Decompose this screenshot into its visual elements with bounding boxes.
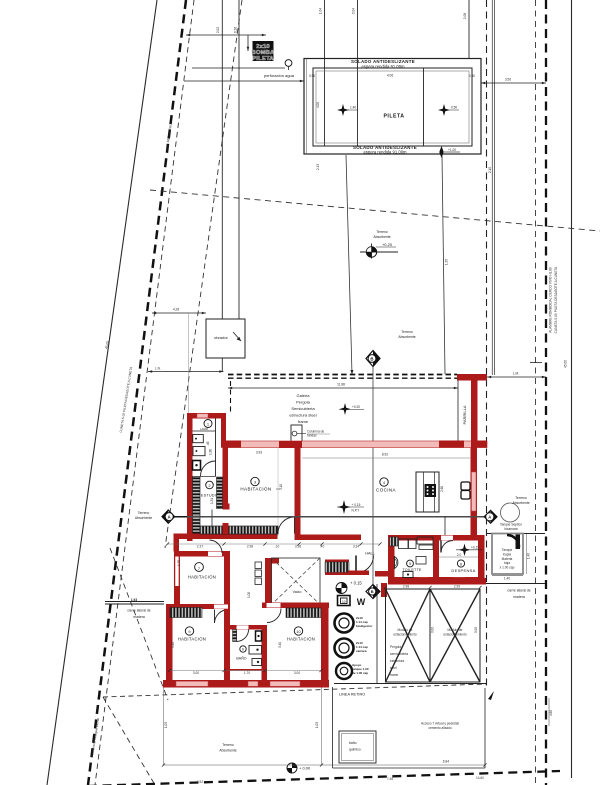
svg-text:1.31: 1.31 [210,498,214,504]
svg-text:Galeria: Galeria [297,393,311,398]
svg-text:espera rendida 91.00m: espera rendida 91.00m [361,64,405,69]
svg-text:1.04: 1.04 [319,8,323,14]
svg-text:frame: frame [390,673,398,677]
svg-text:1.70: 1.70 [177,560,181,566]
svg-text:Terreno: Terreno [138,511,150,515]
svg-text:1.40: 1.40 [350,106,356,110]
svg-text:perforacion agua: perforacion agua [264,73,295,78]
svg-text:.46: .46 [206,441,210,446]
svg-text:2.37: 2.37 [197,545,203,549]
svg-text:Terreno: Terreno [515,496,527,500]
svg-text:Terreno: Terreno [222,743,234,747]
svg-text:baja: baja [504,561,510,565]
svg-text:3.04: 3.04 [352,8,356,14]
svg-text:2.10: 2.10 [488,167,492,173]
svg-text:HABITACION: HABITACION [178,637,206,642]
svg-text:3.00: 3.00 [474,627,478,633]
svg-text:6: 6 [242,648,244,652]
svg-text:3.50: 3.50 [505,78,511,82]
svg-text:PILETA: PILETA [252,56,274,62]
svg-text:Pergola: Pergola [390,645,401,649]
svg-text:W: W [357,597,366,607]
svg-text:2.13: 2.13 [316,164,320,170]
svg-text:Absorbente: Absorbente [219,749,236,753]
svg-text:quimico: quimico [349,748,361,752]
svg-text:baño: baño [349,741,357,745]
svg-text:A: A [488,515,491,520]
svg-text:10: 10 [296,629,301,634]
svg-text:x 1.00 cap: x 1.00 cap [500,566,515,570]
svg-text:2.99: 2.99 [454,585,460,589]
svg-text:Acceso 7 virtual y pedestal: Acceso 7 virtual y pedestal [421,722,459,726]
svg-text:HABITACION: HABITACION [188,575,216,580]
svg-text:Pergola: Pergola [296,400,311,405]
svg-text:+0.20: +0.20 [352,405,360,409]
svg-text:Vacio: Vacio [293,590,302,594]
svg-text:steel: steel [390,666,397,670]
svg-text:Absorbente: Absorbente [373,235,390,239]
svg-text:3.34: 3.34 [353,545,359,549]
svg-text:4.06: 4.06 [387,74,393,78]
svg-text:+0.20: +0.20 [382,242,393,247]
svg-text:11.88: 11.88 [337,383,345,387]
svg-text:8: 8 [460,562,462,566]
svg-text:espera rendida 91.00m: espera rendida 91.00m [363,149,407,154]
svg-text:1.00: 1.00 [247,592,251,598]
svg-text:estructura: estructura [390,659,404,663]
svg-text:3.00: 3.00 [294,671,300,675]
svg-text:5: 5 [409,562,411,566]
svg-text:7.46: 7.46 [387,777,393,781]
svg-text:HABITACION: HABITACION [240,487,271,492]
svg-text:PILETA: PILETA [383,114,404,120]
svg-text:0.90: 0.90 [309,74,315,78]
svg-text:1.93: 1.93 [131,598,137,602]
svg-text:2.0: 2.0 [457,553,462,557]
svg-text:1.80: 1.80 [209,449,213,455]
svg-text:CUNETA S 09 PILETA DESAGOTE A: CUNETA S 09 PILETA DESAGOTE A CUNETA [554,266,558,333]
svg-text:HALL: HALL [365,552,375,556]
svg-text:semicubierta: semicubierta [390,652,408,656]
svg-text:10: 10 [342,600,346,604]
svg-text:1.70: 1.70 [244,671,250,675]
svg-text:8.92: 8.92 [382,453,388,457]
svg-text:+1.00: +1.00 [448,148,456,152]
svg-text:.10: .10 [275,545,280,549]
svg-text:Materia: Materia [502,557,513,561]
svg-text:2.60: 2.60 [440,486,444,492]
svg-text:2.98: 2.98 [403,585,409,589]
svg-text:1.05: 1.05 [164,722,168,728]
svg-text:0.50: 0.50 [469,74,475,78]
svg-text:cierre lateral de: cierre lateral de [127,609,150,613]
svg-text:6.84: 6.84 [443,760,449,764]
svg-text:cierre lateral de: cierre lateral de [507,589,530,593]
svg-text:BAÑO: BAÑO [236,656,246,661]
svg-text:4.00: 4.00 [316,102,320,108]
svg-text:+ 0.15: + 0.15 [352,503,361,507]
svg-text:+0.15: +0.15 [471,546,479,550]
svg-text:Semicubierta: Semicubierta [291,406,315,411]
svg-text:2.02: 2.02 [216,27,220,33]
svg-text:Terreno: Terreno [376,230,388,234]
svg-text:Absorbente: Absorbente [512,501,529,505]
svg-text:3.52: 3.52 [197,780,203,784]
svg-text:+ 0.15: + 0.15 [350,581,362,586]
svg-text:Modulo de: Modulo de [398,628,413,632]
svg-text:2.08: 2.08 [463,13,467,19]
svg-text:N.P.T: N.P.T [352,509,360,513]
svg-text:LAVAD: LAVAD [200,427,208,431]
svg-text:3.40: 3.40 [171,642,175,648]
svg-text:+ 0.00: + 0.00 [299,766,311,771]
svg-text:Absorbente: Absorbente [398,335,415,339]
svg-text:0.50: 0.50 [451,106,457,110]
svg-text:2x10: 2x10 [256,44,270,50]
svg-text:B: B [370,356,373,361]
svg-text:B: B [371,589,374,594]
svg-text:1.05: 1.05 [315,722,319,728]
svg-text:L.M.: L.M. [513,372,519,376]
svg-text:obrador: obrador [214,335,228,340]
svg-text:1.35: 1.35 [445,259,449,265]
svg-text:L.N.: L.N. [155,367,161,371]
svg-text:0.26: 0.26 [234,27,238,33]
svg-text:DESPENSA: DESPENSA [451,568,475,573]
svg-text:COCINA: COCINA [376,488,396,493]
svg-text:3.00: 3.00 [193,671,199,675]
svg-text:madera: madera [133,615,145,619]
svg-text:3.93: 3.93 [256,451,262,455]
svg-text:4.28: 4.28 [173,308,179,312]
svg-text:3.40: 3.40 [278,642,282,648]
svg-text:4.60: 4.60 [549,710,553,716]
svg-text:estructura steel: estructura steel [289,413,316,418]
svg-text:LINEA RETIRO: LINEA RETIRO [339,693,365,697]
svg-text:Terreno: Terreno [401,330,413,334]
svg-text:HABITACION: HABITACION [287,637,315,642]
svg-text:estacionamiento: estacionamiento [393,633,416,637]
svg-text:Kapla: Kapla [503,552,511,556]
svg-text:2.98: 2.98 [247,545,253,549]
svg-text:3.00: 3.00 [431,627,435,633]
svg-text:Modulo de: Modulo de [448,628,463,632]
svg-text:estacionamiento: estacionamiento [443,633,466,637]
svg-text:14.60: 14.60 [476,776,484,780]
svg-text:45.00: 45.00 [564,360,568,368]
svg-text:bicamara: bicamara [504,527,517,531]
svg-text:de 1.00 cap: de 1.00 cap [352,671,368,675]
svg-text:frame: frame [298,419,309,424]
svg-text:1.40: 1.40 [527,553,531,559]
svg-text:Tanque: Tanque [502,548,513,552]
svg-text:ALAMBRE ROMBOIDAL CERCO VIVO H: ALAMBRE ROMBOIDAL CERCO VIVO H1.80 [549,267,553,333]
svg-text:madera: madera [513,595,525,599]
svg-text:cemento alisado: cemento alisado [428,726,451,730]
svg-text:3.10: 3.10 [279,484,283,490]
svg-text:Absorbente: Absorbente [135,516,152,520]
svg-text:biodigestor: biodigestor [356,624,373,628]
svg-text:1.40: 1.40 [504,577,510,581]
svg-text:A: A [168,514,171,519]
svg-text:camara: camara [356,649,367,653]
svg-text:PARRILLA: PARRILLA [462,405,467,424]
